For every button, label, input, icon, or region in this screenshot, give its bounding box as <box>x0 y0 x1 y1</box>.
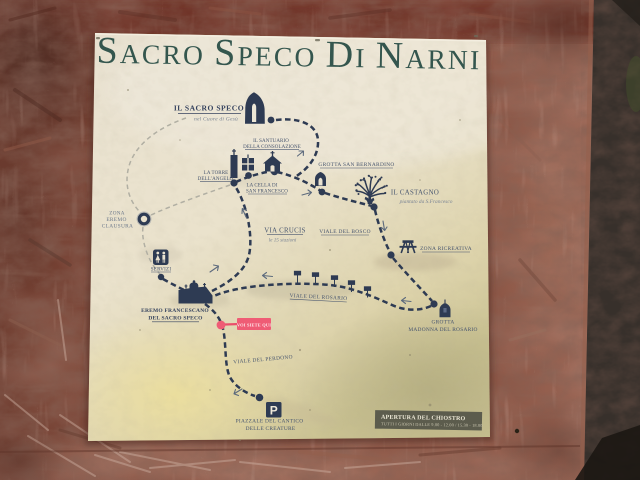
svg-text:ZONA: ZONA <box>109 211 124 217</box>
svg-text:P: P <box>270 404 278 418</box>
svg-text:VIALE DEL BOSCO: VIALE DEL BOSCO <box>319 229 371 235</box>
svg-text:MADONNA DEL ROSARIO: MADONNA DEL ROSARIO <box>408 327 477 333</box>
svg-text:LA CELLA DI: LA CELLA DI <box>246 184 277 189</box>
svg-text:GROTTA: GROTTA <box>432 320 455 326</box>
svg-text:EREMO: EREMO <box>106 217 126 223</box>
svg-text:LA TORRE: LA TORRE <box>204 171 229 176</box>
svg-text:CLAUSURA: CLAUSURA <box>102 224 133 230</box>
svg-text:EREMO FRANCESCANO: EREMO FRANCESCANO <box>141 308 209 314</box>
svg-text:nel Cuore di Gesù: nel Cuore di Gesù <box>194 117 238 123</box>
svg-text:PIAZZALE DEL CANTICO: PIAZZALE DEL CANTICO <box>236 419 304 425</box>
svg-text:VOI SIETE QUI: VOI SIETE QUI <box>237 322 271 327</box>
svg-text:le 15 stazioni: le 15 stazioni <box>269 238 297 244</box>
svg-text:IL SACRO SPECO: IL SACRO SPECO <box>174 104 244 113</box>
svg-text:DEL SACRO SPECO: DEL SACRO SPECO <box>148 316 203 322</box>
svg-text:IL CASTAGNO: IL CASTAGNO <box>391 190 439 197</box>
svg-text:IL SANTUARIO: IL SANTUARIO <box>253 139 289 144</box>
svg-text:ZONA RICREATIVA: ZONA RICREATIVA <box>420 246 472 252</box>
svg-text:DELLE CREATURE: DELLE CREATURE <box>246 426 296 432</box>
svg-text:VIA CRUCIS: VIA CRUCIS <box>264 228 305 235</box>
svg-text:GROTTA SAN BERNARDINO: GROTTA SAN BERNARDINO <box>318 162 394 168</box>
svg-text:piantato da S.Francesco: piantato da S.Francesco <box>399 199 453 205</box>
